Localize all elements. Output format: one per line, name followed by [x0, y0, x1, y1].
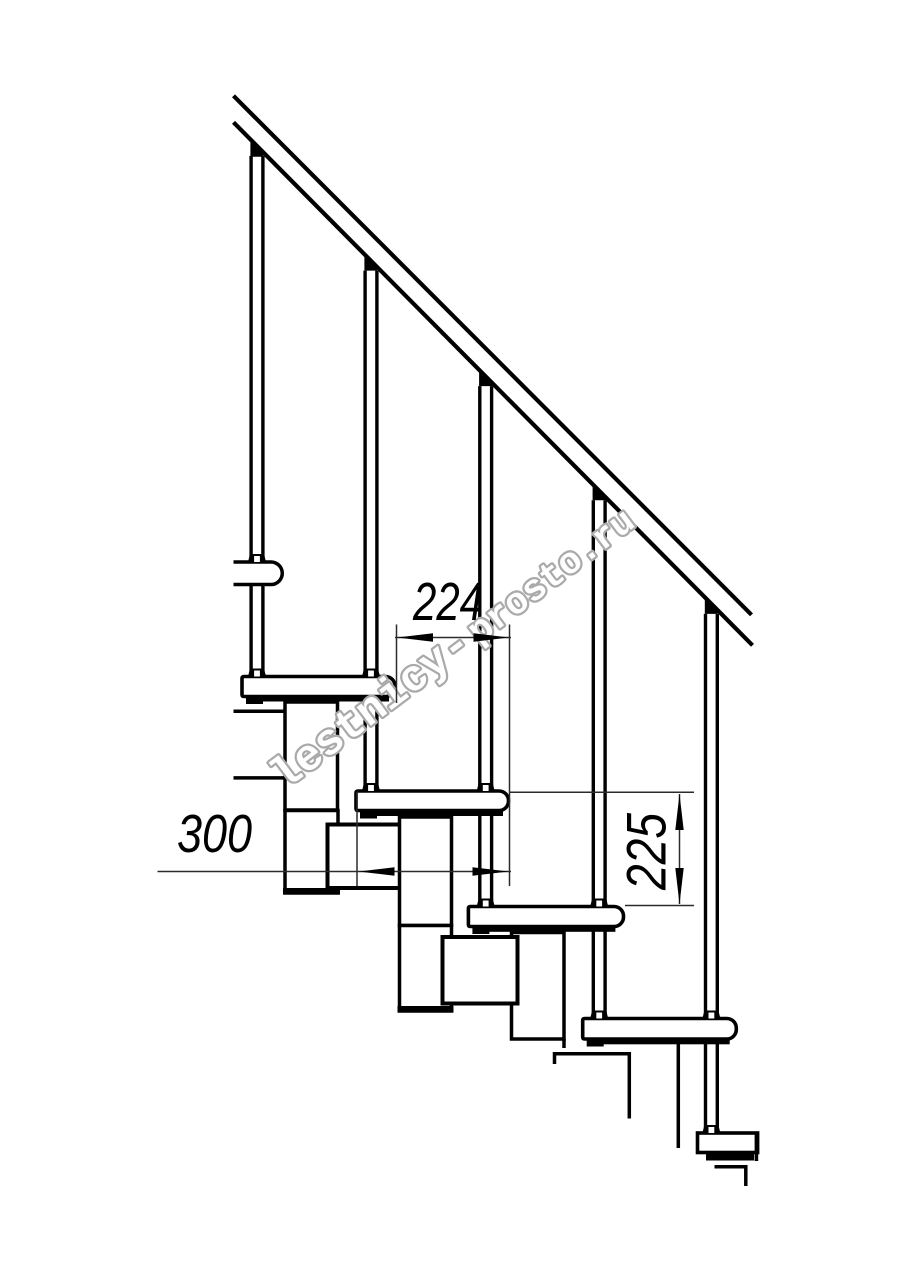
- svg-text:225: 225: [615, 812, 678, 891]
- svg-text:224: 224: [412, 572, 483, 632]
- svg-text:300: 300: [177, 804, 252, 864]
